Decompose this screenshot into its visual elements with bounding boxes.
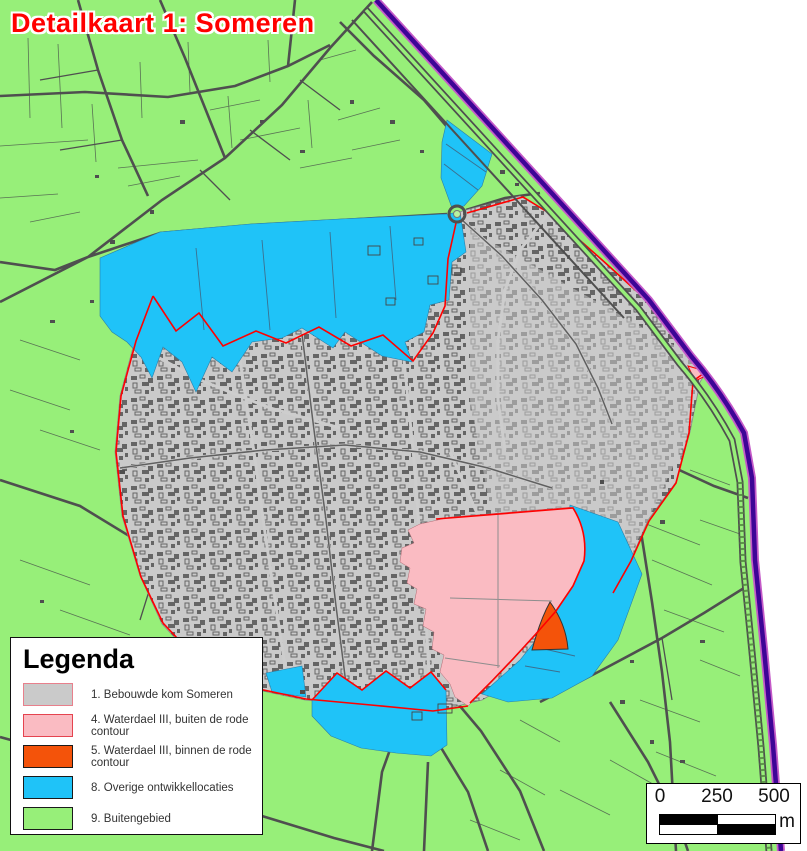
scale-cell [718, 815, 776, 825]
legend-swatch [23, 714, 73, 737]
legend-swatch [23, 807, 73, 830]
legend-title: Legenda [23, 644, 262, 675]
legend-item-waterdael-binnen: 5. Waterdael III, binnen de rode contour [11, 741, 262, 772]
legend-label: 1. Bebouwde kom Someren [91, 689, 233, 701]
scale-cell [718, 825, 776, 835]
legend-label: 5. Waterdael III, binnen de rode contour [91, 745, 262, 769]
scale-tick-0: 0 [655, 786, 666, 808]
scale-cell [660, 825, 718, 835]
legend-label: 4. Waterdael III, buiten de rode contour [91, 714, 262, 738]
legend-swatch [23, 745, 73, 768]
legend-swatch [23, 776, 73, 799]
page-title: Detailkaart 1: Someren [11, 8, 315, 39]
scale-bar: 0 250 500 m [646, 783, 801, 844]
scale-tick-250: 250 [701, 786, 733, 808]
legend-panel: Legenda 1. Bebouwde kom Someren 4. Water… [10, 637, 263, 835]
legend-item-ontwikkellocaties: 8. Overige ontwikkellocaties [11, 772, 262, 803]
scale-ticks: 0 250 500 [647, 786, 800, 810]
scale-cell [660, 815, 718, 825]
scale-bar-checker [659, 814, 776, 835]
legend-item-bebouwde-kom: 1. Bebouwde kom Someren [11, 679, 262, 710]
legend-item-buitengebied: 9. Buitengebied [11, 803, 262, 834]
scale-unit: m [779, 811, 795, 833]
legend-label: 9. Buitengebied [91, 813, 171, 825]
legend-item-waterdael-buiten: 4. Waterdael III, buiten de rode contour [11, 710, 262, 741]
legend-label: 8. Overige ontwikkellocaties [91, 782, 234, 794]
legend-swatch [23, 683, 73, 706]
scale-tick-500: 500 [758, 786, 790, 808]
detail-map-page: Detailkaart 1: Someren Legenda 1. Bebouw… [0, 0, 807, 851]
